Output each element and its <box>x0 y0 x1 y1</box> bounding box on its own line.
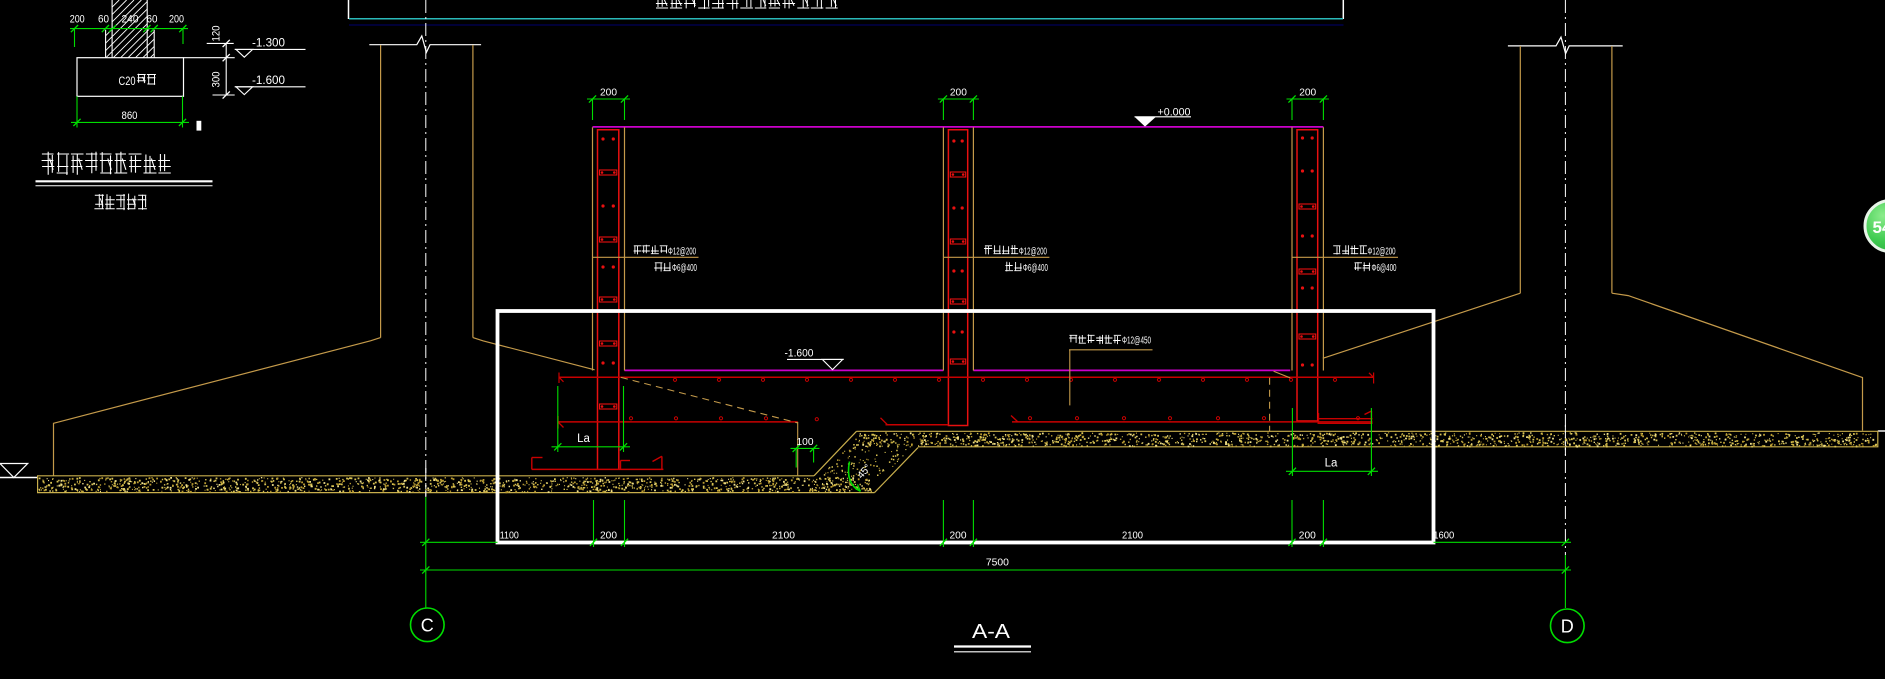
svg-text:-1.300: -1.300 <box>252 38 285 50</box>
svg-text:120: 120 <box>211 26 223 42</box>
svg-text:C: C <box>421 616 434 636</box>
svg-text:-1.600: -1.600 <box>785 348 814 360</box>
svg-text:A-A: A-A <box>972 621 1011 643</box>
svg-text:300: 300 <box>211 72 223 88</box>
svg-text:7500: 7500 <box>986 557 1009 569</box>
svg-text:-1.600: -1.600 <box>252 75 285 87</box>
svg-text:Φ12@200: Φ12@200 <box>1368 247 1396 258</box>
svg-text:200: 200 <box>950 530 967 542</box>
svg-text:Φ6@400: Φ6@400 <box>1023 263 1048 274</box>
svg-text:200: 200 <box>70 14 85 26</box>
svg-text:Φ6@400: Φ6@400 <box>1372 263 1397 274</box>
svg-text:200: 200 <box>600 86 617 98</box>
svg-text:240: 240 <box>122 14 139 26</box>
svg-text:54: 54 <box>1873 218 1885 237</box>
svg-text:200: 200 <box>169 14 184 26</box>
svg-text:2100: 2100 <box>772 530 795 542</box>
svg-text:200: 200 <box>1299 86 1316 98</box>
svg-text:60: 60 <box>98 14 109 26</box>
svg-text:C20: C20 <box>119 74 136 88</box>
svg-text:Φ12@200: Φ12@200 <box>1019 247 1047 258</box>
svg-text:Φ12@200: Φ12@200 <box>668 247 696 258</box>
svg-text:60: 60 <box>147 14 158 26</box>
svg-text:1100: 1100 <box>500 530 519 542</box>
svg-text:D: D <box>1561 617 1574 637</box>
svg-text:860: 860 <box>122 110 138 122</box>
svg-text:Φ6@400: Φ6@400 <box>672 263 697 274</box>
svg-text:La: La <box>1325 458 1338 470</box>
svg-text:1600: 1600 <box>1433 530 1454 542</box>
svg-text:Φ12@450: Φ12@450 <box>1122 336 1151 347</box>
svg-text:200: 200 <box>950 86 967 98</box>
svg-text:La: La <box>577 433 590 445</box>
svg-text:100: 100 <box>797 436 814 448</box>
svg-text:200: 200 <box>600 530 617 542</box>
svg-text:200: 200 <box>1299 530 1316 542</box>
svg-text:2100: 2100 <box>1122 530 1143 542</box>
